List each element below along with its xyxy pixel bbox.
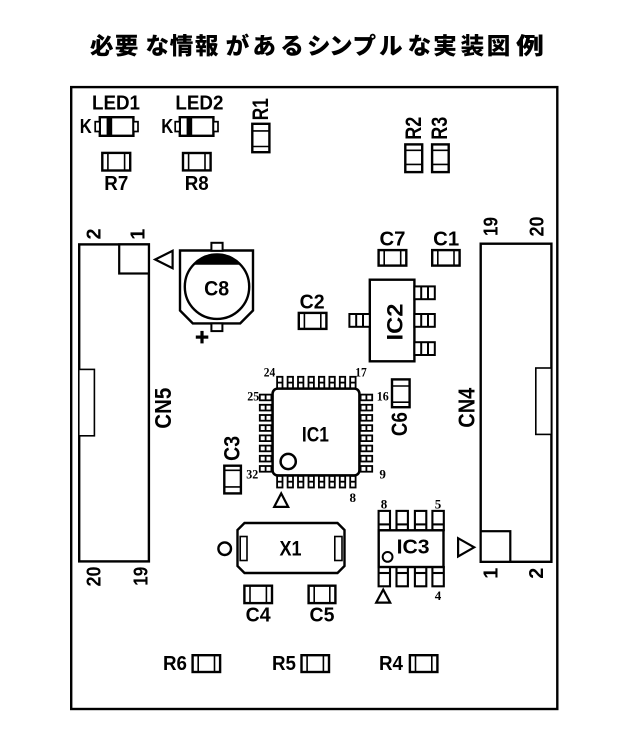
svg-text:19: 19 (481, 217, 503, 236)
svg-text:2: 2 (83, 229, 105, 240)
svg-text:C3: C3 (220, 436, 245, 461)
svg-text:K: K (80, 116, 92, 138)
svg-text:K: K (161, 116, 173, 138)
svg-text:C8: C8 (204, 276, 229, 300)
svg-text:R6: R6 (163, 653, 187, 675)
svg-text:C2: C2 (300, 291, 325, 313)
svg-text:16: 16 (377, 388, 389, 403)
svg-text:CN5: CN5 (150, 388, 176, 429)
svg-text:R3: R3 (427, 117, 452, 140)
svg-text:C6: C6 (387, 412, 412, 436)
svg-text:R8: R8 (185, 173, 209, 195)
svg-text:R2: R2 (401, 117, 426, 140)
svg-text:32: 32 (246, 466, 258, 481)
svg-text:C4: C4 (246, 605, 272, 627)
svg-text:25: 25 (247, 389, 259, 404)
svg-text:X1: X1 (280, 538, 302, 561)
svg-text:IC3: IC3 (397, 536, 430, 558)
svg-text:9: 9 (379, 466, 386, 481)
svg-text:8: 8 (381, 497, 388, 512)
svg-text:24: 24 (264, 364, 276, 379)
svg-text:20: 20 (83, 567, 105, 587)
svg-text:1: 1 (127, 229, 149, 240)
svg-text:LED2: LED2 (175, 93, 223, 115)
svg-text:R5: R5 (272, 653, 296, 675)
svg-text:2: 2 (526, 568, 548, 579)
svg-text:C1: C1 (433, 229, 459, 251)
svg-text:19: 19 (130, 567, 152, 586)
svg-text:17: 17 (355, 364, 367, 379)
svg-text:C7: C7 (380, 229, 406, 251)
svg-text:5: 5 (435, 497, 442, 512)
svg-text:LED1: LED1 (92, 93, 140, 115)
svg-text:R7: R7 (104, 173, 128, 195)
svg-text:8: 8 (350, 490, 357, 505)
svg-text:R4: R4 (379, 653, 404, 675)
svg-text:IC1: IC1 (302, 424, 329, 447)
svg-text:C5: C5 (310, 605, 335, 627)
svg-text:IC2: IC2 (382, 304, 407, 341)
svg-text:4: 4 (435, 588, 442, 603)
svg-text:R1: R1 (248, 98, 273, 120)
svg-text:CN4: CN4 (453, 388, 479, 428)
svg-text:1: 1 (481, 568, 503, 579)
svg-text:20: 20 (527, 217, 549, 237)
